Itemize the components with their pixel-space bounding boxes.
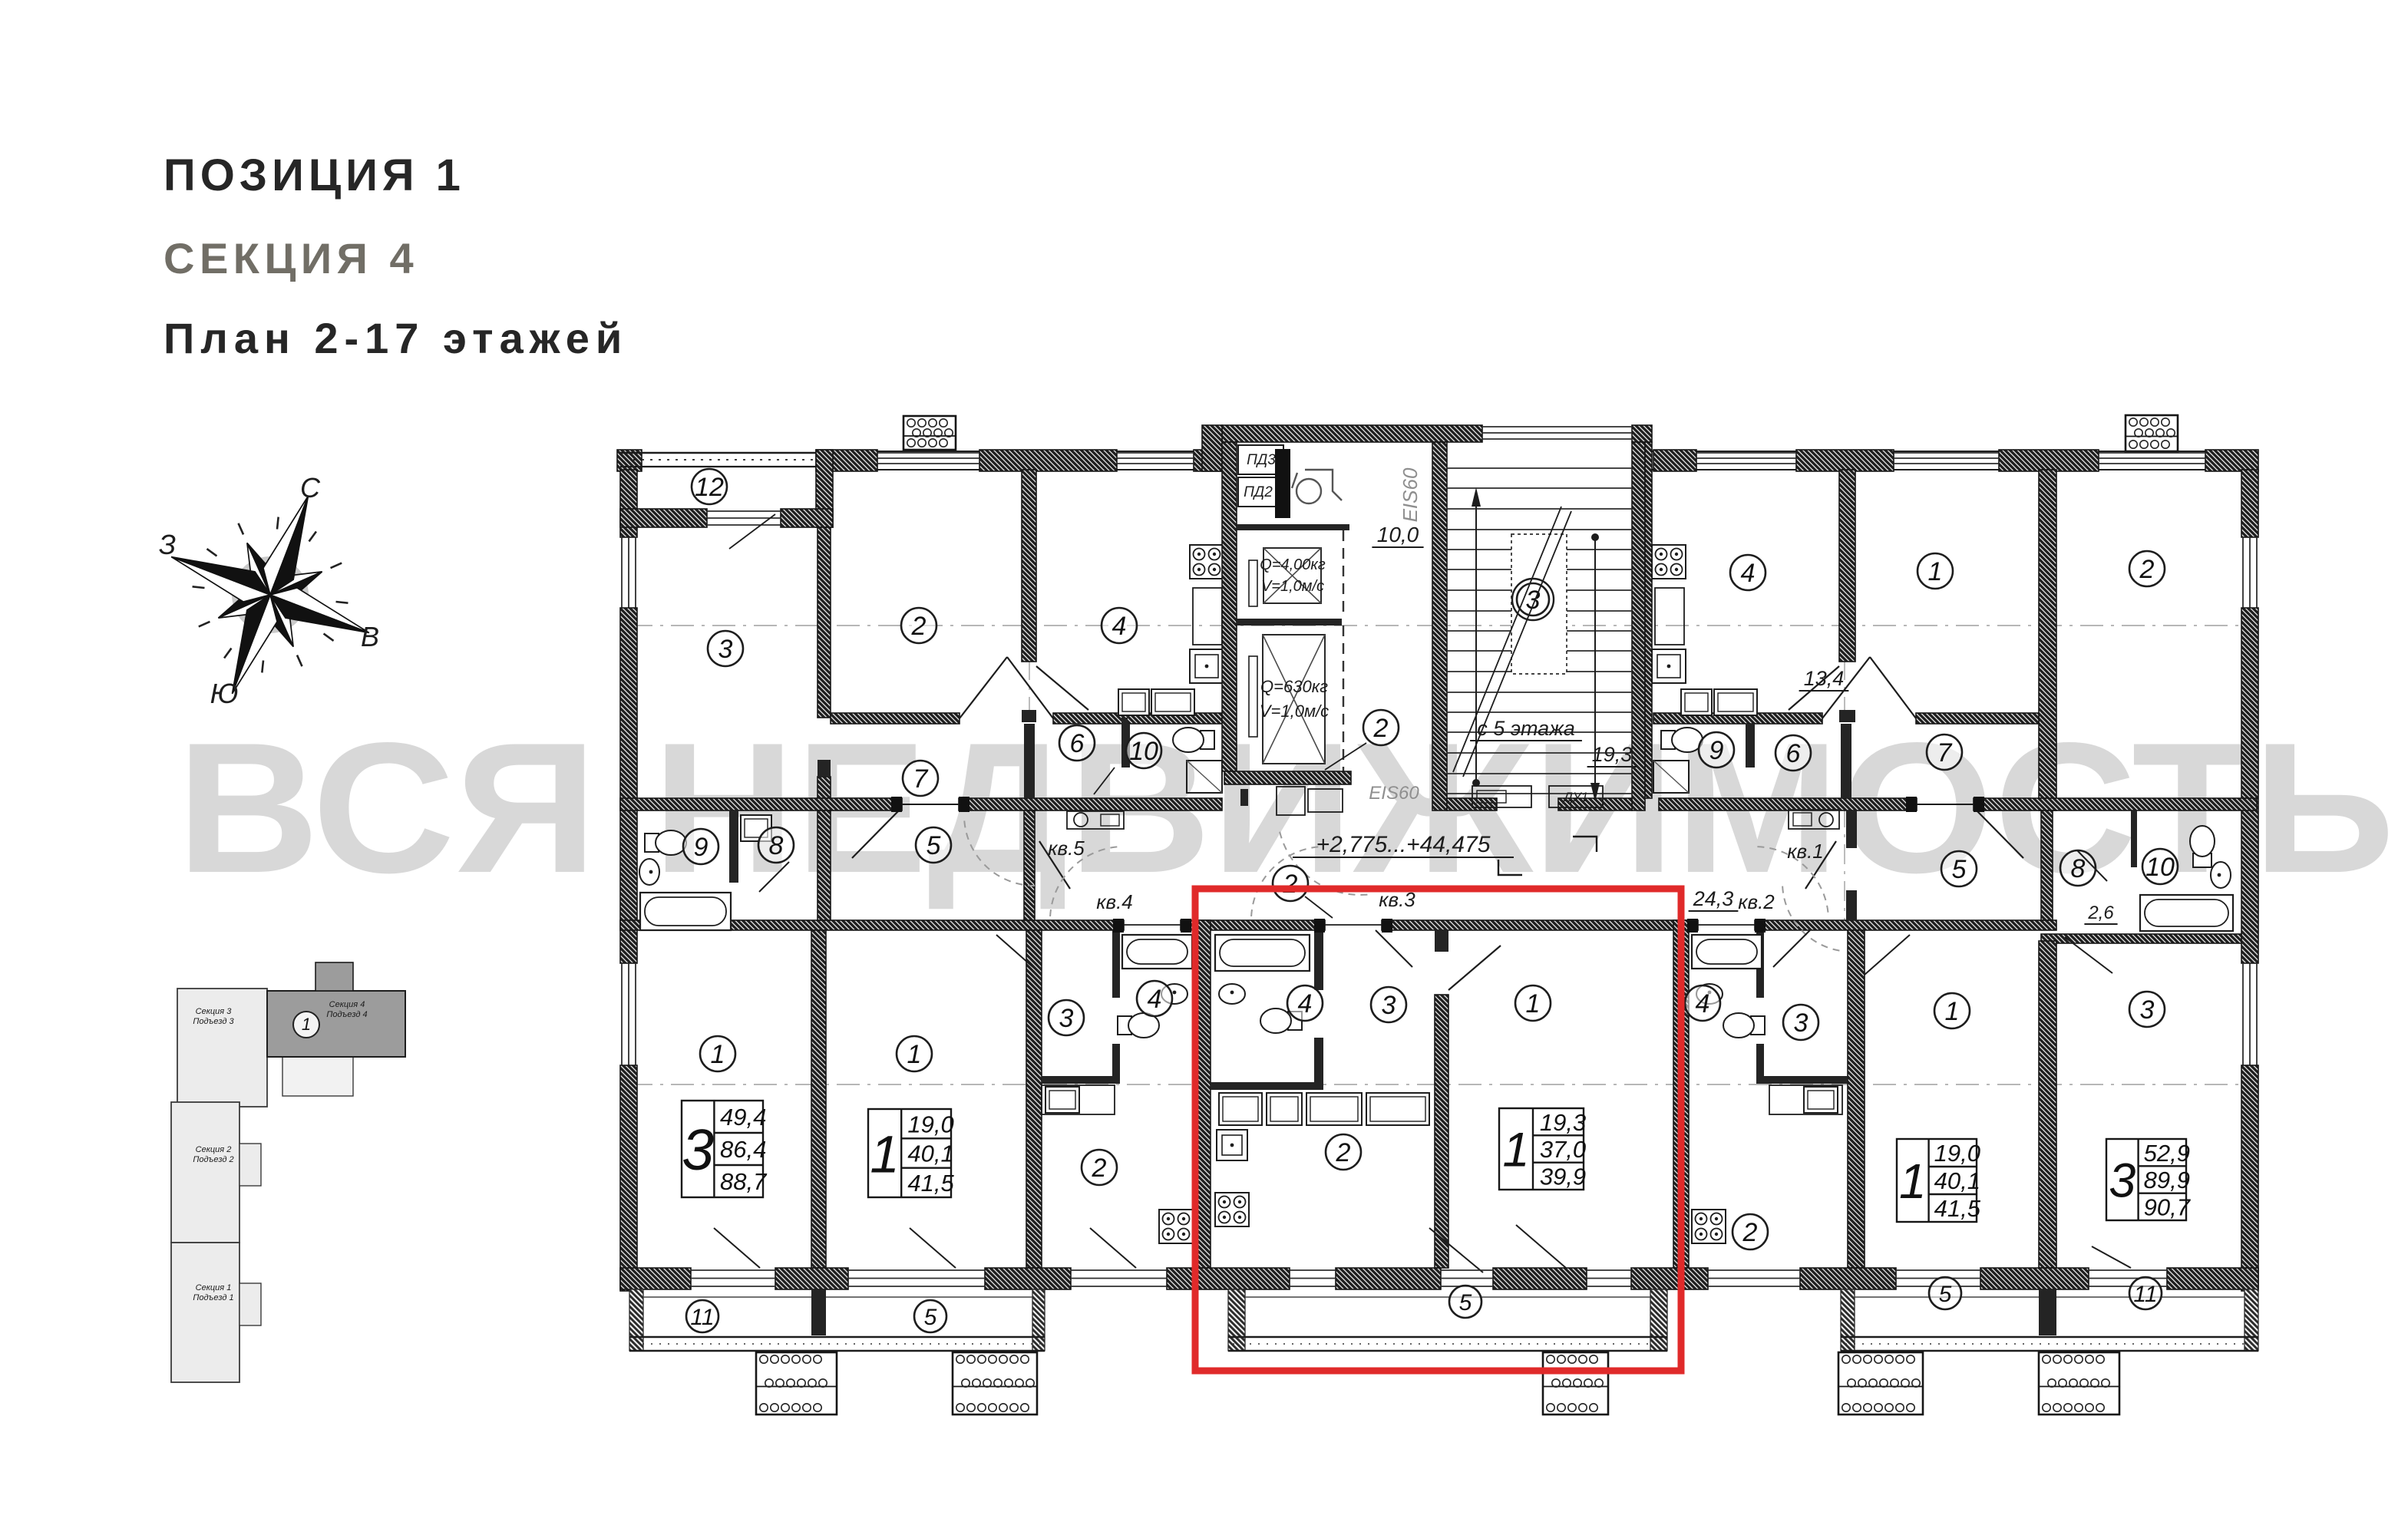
svg-text:3: 3 [1794, 1008, 1808, 1038]
svg-text:Подъезд 3: Подъезд 3 [193, 1017, 234, 1026]
svg-text:4: 4 [1298, 989, 1313, 1018]
svg-text:V=1,0м/c: V=1,0м/c [1260, 701, 1329, 721]
svg-text:4: 4 [1696, 989, 1710, 1018]
svg-text:3: 3 [1382, 991, 1396, 1020]
svg-text:1: 1 [1502, 1124, 1529, 1177]
svg-text:5: 5 [1952, 855, 1967, 884]
svg-text:EIS60: EIS60 [1369, 783, 1419, 804]
svg-text:2: 2 [1742, 1218, 1758, 1247]
svg-text:Подъезд 1: Подъезд 1 [193, 1293, 233, 1302]
svg-text:10: 10 [1129, 737, 1158, 766]
svg-text:с 5 этажа: с 5 этажа [1477, 717, 1575, 740]
svg-text:7: 7 [913, 764, 929, 794]
svg-text:Q=630кг: Q=630кг [1260, 677, 1328, 696]
svg-text:Секция 2: Секция 2 [196, 1145, 232, 1154]
svg-text:V=1,0м/c: V=1,0м/c [1261, 578, 1324, 595]
svg-text:2: 2 [911, 612, 927, 641]
svg-text:9: 9 [694, 833, 709, 862]
svg-text:2: 2 [1336, 1138, 1351, 1167]
svg-text:ПОЗИЦИЯ 1: ПОЗИЦИЯ 1 [164, 150, 465, 200]
svg-text:Секция 1: Секция 1 [196, 1283, 232, 1292]
svg-text:ПД2: ПД2 [1244, 484, 1273, 500]
svg-text:88,7: 88,7 [720, 1168, 768, 1195]
svg-text:С: С [300, 472, 321, 503]
svg-text:кв.5: кв.5 [1048, 837, 1085, 860]
svg-text:кв.1: кв.1 [1787, 840, 1824, 863]
svg-text:Секция 3: Секция 3 [196, 1007, 233, 1016]
svg-text:10: 10 [2145, 853, 2175, 882]
svg-text:11: 11 [690, 1305, 714, 1330]
svg-text:8: 8 [769, 831, 784, 860]
svg-text:кв.4: кв.4 [1096, 890, 1133, 913]
svg-text:3: 3 [718, 635, 733, 664]
svg-text:1: 1 [711, 1040, 725, 1069]
svg-text:1: 1 [302, 1015, 311, 1034]
svg-text:13,4: 13,4 [1804, 667, 1845, 690]
svg-text:1: 1 [1928, 557, 1943, 586]
svg-text:6: 6 [1786, 739, 1801, 768]
svg-text:Q=4,00кг: Q=4,00кг [1260, 556, 1326, 573]
svg-text:3: 3 [2140, 995, 2155, 1025]
svg-text:12: 12 [695, 473, 724, 502]
svg-text:41,5: 41,5 [1934, 1195, 1981, 1222]
svg-text:24,3: 24,3 [1693, 887, 1734, 910]
svg-text:5: 5 [924, 1305, 937, 1330]
svg-text:ПД3: ПД3 [1247, 452, 1276, 468]
svg-text:39,9: 39,9 [1540, 1163, 1586, 1190]
svg-text:В: В [361, 621, 379, 652]
svg-text:7: 7 [1937, 738, 1953, 767]
svg-text:19,0: 19,0 [907, 1111, 953, 1137]
svg-text:40,1: 40,1 [907, 1141, 953, 1167]
svg-text:10,0: 10,0 [1377, 523, 1419, 546]
svg-text:3: 3 [1059, 1004, 1074, 1033]
svg-text:1: 1 [1899, 1154, 1927, 1209]
svg-text:5: 5 [1939, 1282, 1952, 1307]
svg-text:1: 1 [907, 1040, 922, 1069]
svg-text:89,9: 89,9 [2144, 1167, 2190, 1193]
svg-text:4: 4 [1148, 985, 1162, 1014]
svg-text:6: 6 [1070, 729, 1085, 758]
svg-text:5: 5 [1459, 1290, 1472, 1315]
svg-text:2: 2 [1373, 714, 1389, 743]
svg-text:41,5: 41,5 [907, 1170, 954, 1197]
svg-text:9: 9 [1709, 736, 1724, 765]
svg-text:СЕКЦИЯ 4: СЕКЦИЯ 4 [164, 234, 418, 282]
svg-text:3: 3 [2109, 1154, 2135, 1208]
svg-text:49,4: 49,4 [720, 1104, 766, 1131]
svg-text:Подъезд 2: Подъезд 2 [193, 1155, 233, 1164]
svg-text:11: 11 [2133, 1282, 2157, 1307]
svg-text:Ю: Ю [210, 678, 239, 709]
svg-text:1: 1 [1526, 989, 1541, 1018]
svg-text:Подъезд 4: Подъезд 4 [326, 1010, 367, 1019]
svg-text:37,0: 37,0 [1540, 1136, 1586, 1163]
svg-text:EIS60: EIS60 [1399, 467, 1422, 522]
svg-text:1: 1 [870, 1124, 899, 1183]
svg-text:90,7: 90,7 [2144, 1193, 2192, 1220]
svg-text:4: 4 [1112, 612, 1127, 641]
svg-text:1: 1 [1945, 997, 1960, 1026]
svg-text:2: 2 [2139, 555, 2155, 584]
svg-text:3: 3 [682, 1117, 714, 1182]
svg-text:86,4: 86,4 [720, 1136, 766, 1163]
svg-text:19,3: 19,3 [1540, 1109, 1586, 1136]
svg-text:52,9: 52,9 [2144, 1140, 2190, 1167]
svg-text:кв.2: кв.2 [1738, 890, 1775, 913]
svg-text:2: 2 [1092, 1154, 1107, 1183]
svg-text:5: 5 [927, 831, 941, 860]
svg-text:19,0: 19,0 [1934, 1140, 1980, 1167]
svg-text:8: 8 [2071, 854, 2086, 883]
svg-text:19,3: 19,3 [1592, 743, 1633, 766]
svg-text:+2,775...+44,475: +2,775...+44,475 [1316, 832, 1491, 857]
svg-text:40,1: 40,1 [1934, 1167, 1980, 1194]
svg-text:План 2-17 этажей: План 2-17 этажей [164, 314, 628, 362]
svg-text:ДУ1: ДУ1 [1562, 790, 1588, 804]
svg-text:Секция 4: Секция 4 [329, 1000, 365, 1009]
svg-text:4: 4 [1741, 559, 1756, 588]
svg-text:2: 2 [1283, 870, 1298, 899]
svg-text:2,6: 2,6 [2087, 903, 2114, 923]
svg-text:З: З [159, 529, 176, 560]
